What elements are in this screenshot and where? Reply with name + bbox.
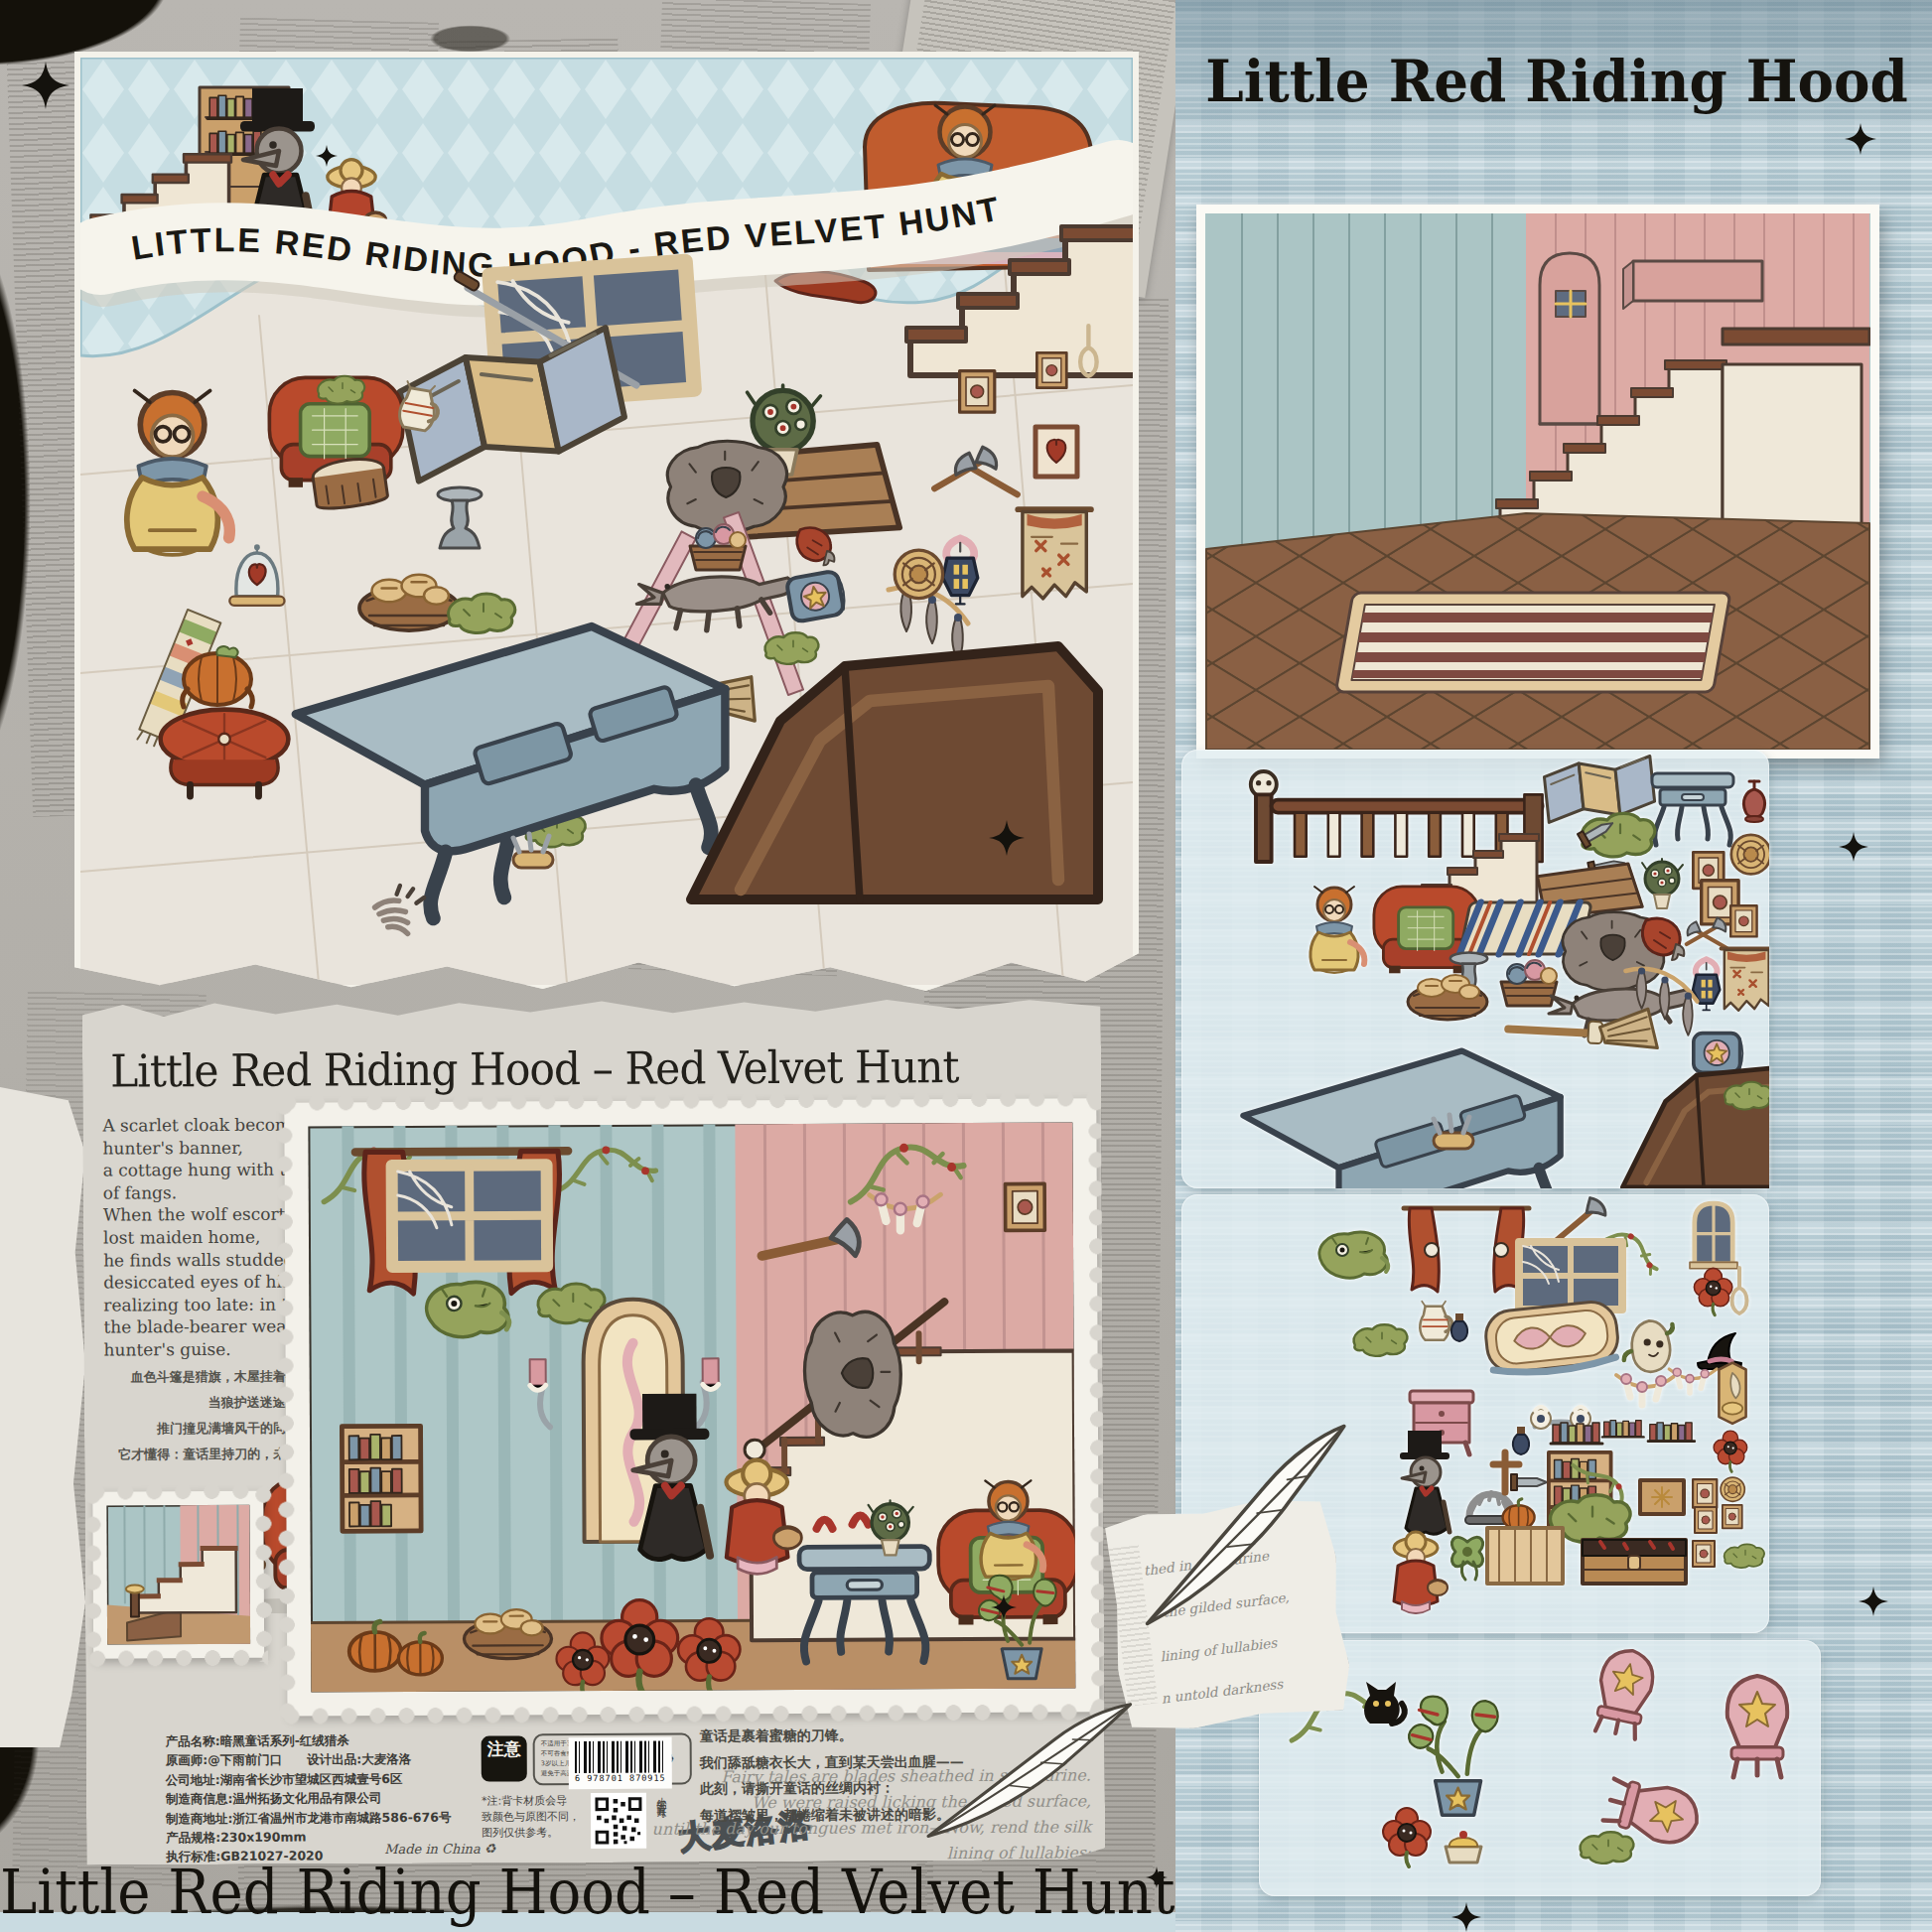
- sticker-cobweb-window: [1519, 1242, 1622, 1310]
- moss-clump: [318, 376, 364, 404]
- made-in-label: Made in China ♻: [384, 1842, 495, 1858]
- sticker-potion-bottle: [1513, 1427, 1529, 1454]
- sticker-folding-screen: [1543, 756, 1655, 822]
- footer-title: Little Red Riding Hood – Red Velvet Hunt: [0, 1857, 1050, 1927]
- woven-plate: [895, 550, 942, 598]
- sticker-horn-trophy: [1719, 1363, 1745, 1424]
- stamp-frame: [1006, 1183, 1045, 1230]
- map-tapestry: [1018, 509, 1091, 599]
- sticker-spell-book: [1694, 1034, 1743, 1073]
- striped-rug: [1335, 593, 1730, 692]
- spell-book: [786, 570, 848, 622]
- small-frame: [960, 371, 995, 413]
- heart-painting: [1035, 427, 1077, 477]
- sticker-skull-sack: [1624, 1320, 1673, 1371]
- sticker-woven-plate: [1731, 835, 1769, 875]
- sticker-bone-garland: [1669, 1368, 1717, 1393]
- sticker-yarn-basket: [1501, 960, 1557, 1006]
- sticker-stained-glass-door: [1483, 1300, 1620, 1377]
- small-stamp-scene: [106, 1505, 250, 1645]
- room-backdrop-card: [1196, 205, 1879, 759]
- small-frame: [1036, 352, 1066, 387]
- sticker-small-frame: [1695, 1507, 1717, 1533]
- sticker-red-riding-hood-girl: [1394, 1532, 1448, 1613]
- sticker-vase: [1743, 781, 1764, 822]
- sticker-dagger: [1511, 1474, 1547, 1490]
- sparkle-icon: [1839, 832, 1868, 862]
- sparkle-icon: [1451, 1902, 1481, 1932]
- sticker-skull-banister: [1251, 771, 1543, 862]
- sticker-star-back-chair: [1727, 1676, 1788, 1777]
- sticker-book-row: [1648, 1423, 1695, 1442]
- sticker-jug-and-jars: [1420, 1302, 1467, 1341]
- moss-clump: [765, 632, 819, 664]
- sticker-wood-panel: [1487, 1528, 1563, 1584]
- room-scene: [1205, 213, 1870, 750]
- moss-clump: [449, 594, 515, 632]
- sticker-small-frame: [1693, 1479, 1717, 1508]
- notice-badge: 注意: [482, 1735, 527, 1781]
- script-fragment: n untold darkness: [1161, 1676, 1284, 1707]
- front-box-illustration: LITTLE RED RIDING HOOD - RED VELVET HUNT: [80, 58, 1133, 983]
- sticker-red-curtains: [1404, 1208, 1529, 1292]
- stamp-cobweb-window: [392, 1165, 548, 1267]
- sticker-red-flower: [1714, 1431, 1747, 1471]
- sticker-eyeball-plant: [1642, 859, 1683, 908]
- sparkle-icon: [991, 1594, 1017, 1620]
- big-stamp-scene: [308, 1122, 1075, 1692]
- sparkle-icon: [316, 145, 338, 167]
- sticker-granny: [1311, 887, 1364, 973]
- sticker-battle-axe: [1547, 1195, 1608, 1242]
- sparkle-icon: [22, 62, 69, 109]
- sticker-frame: [1730, 905, 1756, 936]
- sticker-arched-window: [1690, 1203, 1737, 1269]
- sticker-wolf-gentleman: [1400, 1431, 1449, 1534]
- sticker-framed-sun: [1640, 1480, 1684, 1514]
- page: LITTLE RED RIDING HOOD - RED VELVET HUNT: [0, 0, 1932, 1932]
- sticker-map-tapestry: [1722, 948, 1769, 1010]
- sticker-book-row: [1551, 1423, 1602, 1444]
- big-stamp: [284, 1098, 1099, 1716]
- stamp-bookshelf: [342, 1426, 421, 1531]
- sticker-book-row: [1602, 1421, 1644, 1438]
- torn-white-paper-edge: [0, 1087, 85, 1747]
- right-panel-title: Little Red Riding Hood: [1202, 48, 1911, 114]
- product-front-box: LITTLE RED RIDING HOOD - RED VELVET HUNT: [74, 52, 1139, 991]
- red-ottoman: [161, 710, 289, 796]
- stamp-moss-garland: [427, 1282, 509, 1336]
- sparkle-icon: [1845, 123, 1876, 155]
- sticker-venus-flytrap-pot: [1409, 1697, 1497, 1816]
- product-back-panel: Little Red Riding Hood – Red Velvet Hunt…: [82, 996, 1106, 1864]
- sticker-moss-clump: [1581, 1832, 1634, 1863]
- sticker-vine-bow: [1451, 1537, 1482, 1580]
- sticker-side-table: [1652, 773, 1733, 845]
- sparkle-icon: [989, 820, 1025, 856]
- sticker-small-frame: [1693, 1541, 1715, 1567]
- sticker-bloody-chest: [1583, 1540, 1686, 1584]
- sparkle-icon: [1859, 1587, 1888, 1616]
- back-panel-title: Little Red Riding Hood – Red Velvet Hunt: [110, 1040, 1025, 1098]
- sticker-moss: [1354, 1324, 1408, 1356]
- sticker-star-shield-chair: [1590, 1645, 1658, 1739]
- sparkle-icon: [1146, 1866, 1168, 1888]
- blue-plank-wall: [1206, 213, 1526, 549]
- sticker-moss-clump: [1725, 1082, 1769, 1110]
- sticker-noose: [1732, 1268, 1747, 1313]
- sticker-poppy-bloom: [1694, 1268, 1731, 1314]
- sticker-bone-garland: [1616, 1374, 1676, 1405]
- sticker-moss-clump: [1725, 1544, 1764, 1568]
- arched-door: [1540, 253, 1599, 424]
- small-stamp: [92, 1491, 264, 1659]
- sticker-blue-console-table: [1243, 1051, 1560, 1189]
- sticker-sheet-1: [1181, 750, 1769, 1188]
- stamp-fur-coat: [804, 1311, 900, 1437]
- wall-shelf-beam: [1623, 261, 1762, 309]
- sticker-moss-critter: [1319, 1232, 1388, 1278]
- sticker-black-cat: [1364, 1682, 1405, 1724]
- sticker-small-frame: [1723, 1505, 1742, 1528]
- sticker-round-frame: [1721, 1477, 1744, 1501]
